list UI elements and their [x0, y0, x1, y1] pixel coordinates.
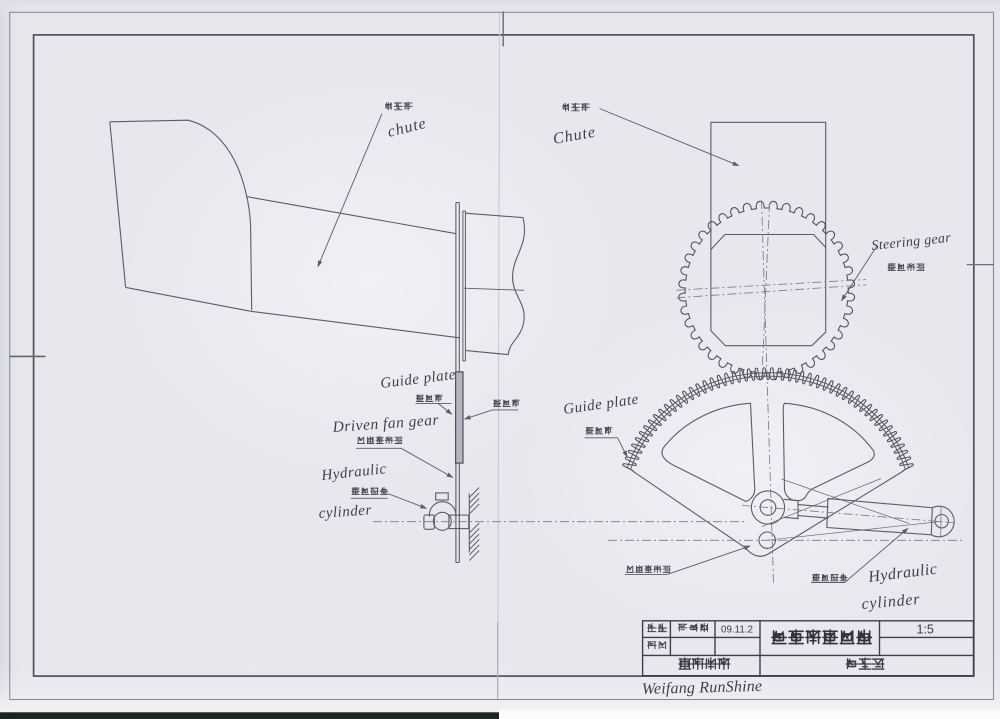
svg-text:09.11.2: 09.11.2: [721, 624, 753, 635]
svg-text:1:5: 1:5: [917, 623, 934, 637]
svg-text:Weifang RunShine: Weifang RunShine: [642, 678, 763, 698]
